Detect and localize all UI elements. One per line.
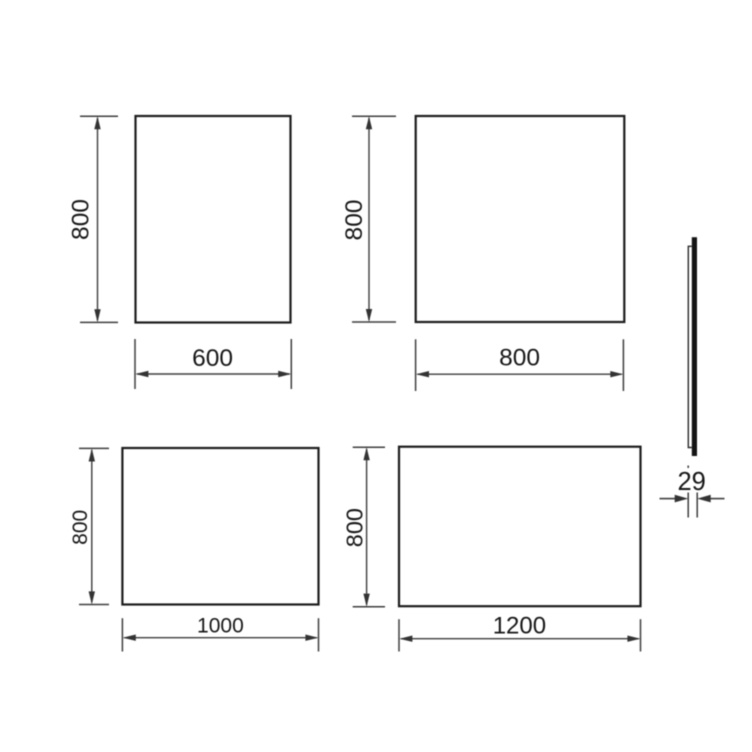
svg-text:800: 800 bbox=[68, 199, 95, 240]
svg-text:800: 800 bbox=[342, 508, 368, 547]
svg-text:29: 29 bbox=[678, 468, 706, 496]
svg-text:600: 600 bbox=[192, 345, 233, 372]
svg-text:800: 800 bbox=[341, 200, 368, 241]
svg-text:1000: 1000 bbox=[197, 615, 244, 638]
svg-text:800: 800 bbox=[499, 345, 540, 372]
svg-text:1200: 1200 bbox=[493, 613, 546, 640]
svg-text:800: 800 bbox=[69, 510, 92, 545]
